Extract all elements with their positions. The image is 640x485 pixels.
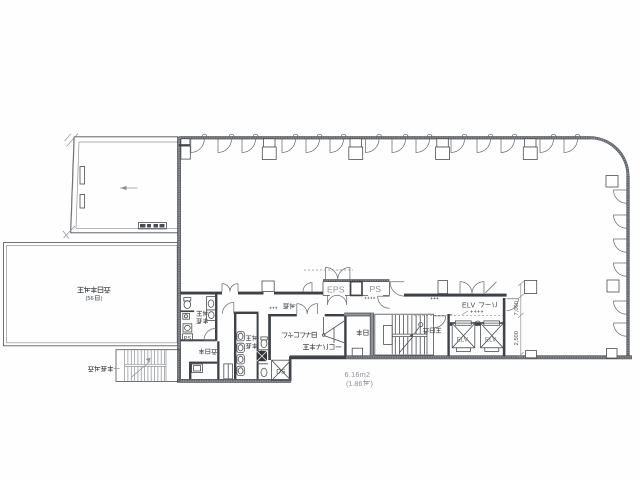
svg-text:7,000: 7,000 [514, 301, 520, 316]
svg-text:): ) [371, 379, 373, 388]
svg-text:ELV: ELV [485, 337, 497, 344]
svg-text:EPS: EPS [327, 284, 345, 294]
svg-text:DS: DS [276, 369, 286, 376]
svg-text:2,500: 2,500 [514, 331, 520, 346]
svg-text:PS: PS [184, 336, 192, 342]
svg-text:6.16m2: 6.16m2 [345, 370, 371, 379]
svg-text:(1.86: (1.86 [346, 379, 362, 388]
svg-text:): ) [101, 296, 103, 302]
svg-text:ELV: ELV [462, 303, 475, 310]
svg-text:ELV: ELV [457, 337, 469, 344]
svg-text:(56: (56 [86, 296, 94, 302]
svg-text:PS: PS [370, 284, 382, 294]
